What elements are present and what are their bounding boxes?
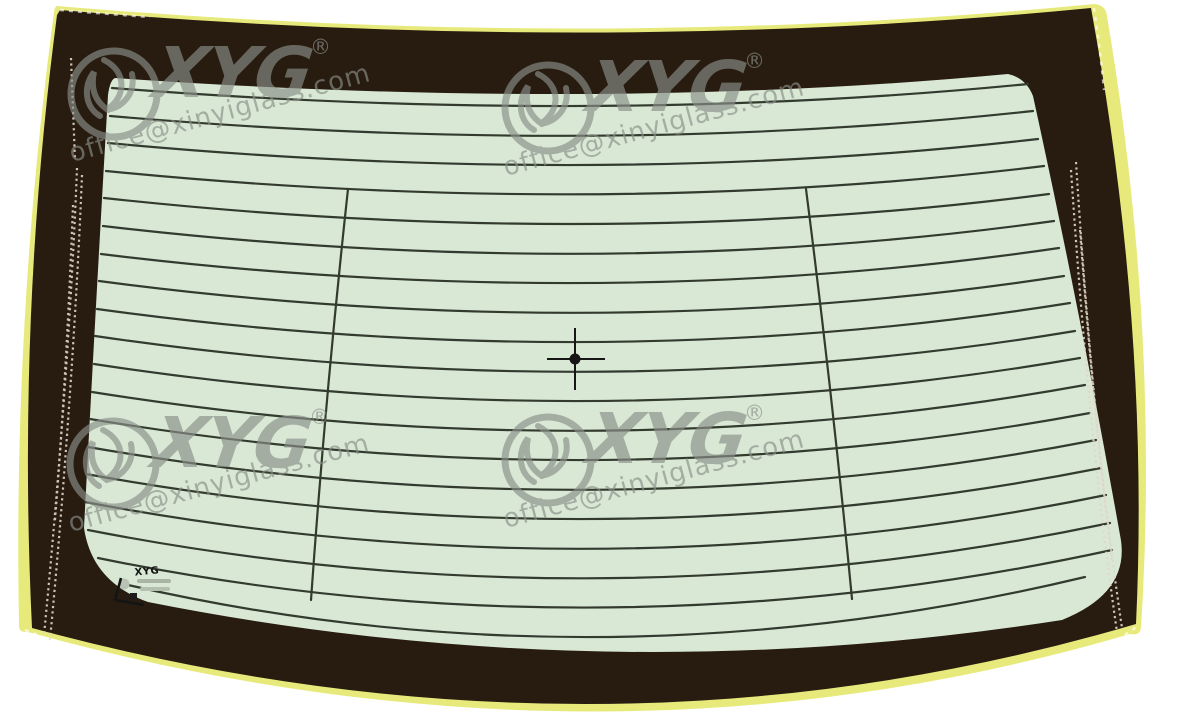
product-image-canvas: XYG ® office@xinyiglass.com (0, 0, 1200, 717)
glass-surface (84, 74, 1122, 652)
stamp-text-row (140, 587, 170, 591)
stamp-mark (130, 593, 137, 599)
stamp-text-row (137, 579, 171, 583)
rear-windshield-image: XYG ® office@xinyiglass.com (0, 0, 1200, 717)
center-dot (570, 354, 581, 365)
stamp-brand-text: XYG (134, 565, 160, 578)
